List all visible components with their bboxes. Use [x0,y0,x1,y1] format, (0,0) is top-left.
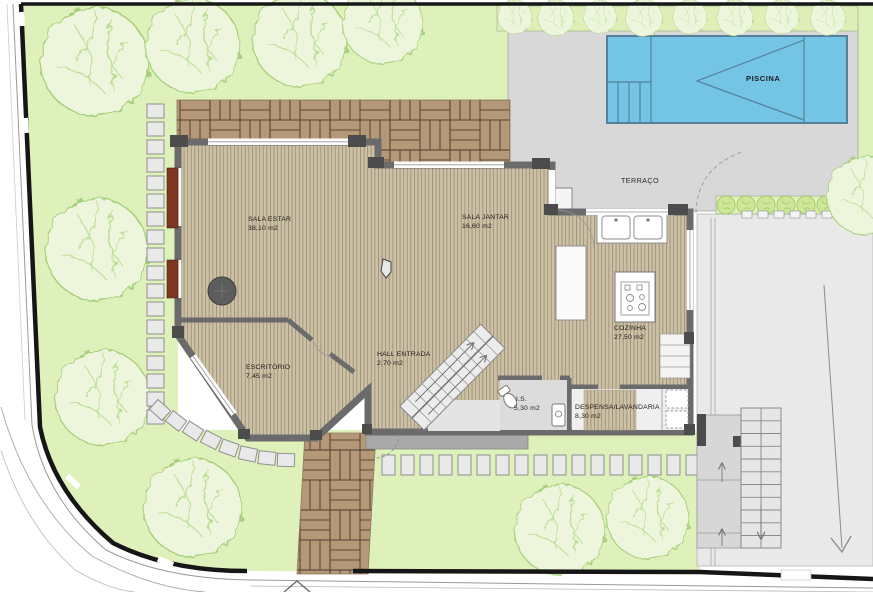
label-kitchen-area: 27,50 m2 [614,334,644,341]
label-kitchen: COZINHA [614,325,646,332]
label-wc: I.S. [516,396,527,403]
rear-gate [781,570,811,580]
kitchen-island [615,272,655,322]
tree [146,0,240,93]
washbasin-icon [552,404,565,426]
label-dining-room: SALA JANTAR [462,214,509,221]
label-hall: HALL ENTRADA [377,351,431,358]
washer-icon [666,390,688,408]
tree [515,485,605,575]
stepping-stones-bottom-row [382,455,699,475]
tree [607,477,689,559]
kitchen-counter [556,246,586,320]
kitchen-sink-unit [597,213,667,243]
tree [144,459,242,557]
floor-plan-drawing: PISCINA TERRAÇO [0,0,873,592]
walkway [297,433,376,574]
utility-steps-area [697,414,744,548]
label-office: ESCRITÓRIO [246,362,290,371]
pool: PISCINA [607,36,847,123]
cooktop-icon [621,282,649,315]
label-wc-area: 5,30 m2 [514,405,540,412]
tree [253,0,347,87]
label-office-area: 7,45 m2 [246,373,272,380]
label-hall-area: 2,70 m2 [377,360,403,367]
site-plan: PISCINA TERRAÇO [0,0,873,592]
pool-label: PISCINA [746,74,780,83]
tree [41,8,149,116]
fireplace [208,277,236,305]
label-living-area: 38,10 m2 [248,225,278,232]
tree [46,199,148,301]
label-pantry: DESPENSA/LAVANDARIA [575,404,660,411]
exterior-stairs [741,408,781,548]
label-living-room: SALA ESTAR [248,216,291,223]
tree [55,351,150,446]
terrace-label: TERRAÇO [621,176,659,185]
label-pantry-area: 8,30 m2 [575,413,601,420]
label-dining-area: 16,60 m2 [462,223,492,230]
